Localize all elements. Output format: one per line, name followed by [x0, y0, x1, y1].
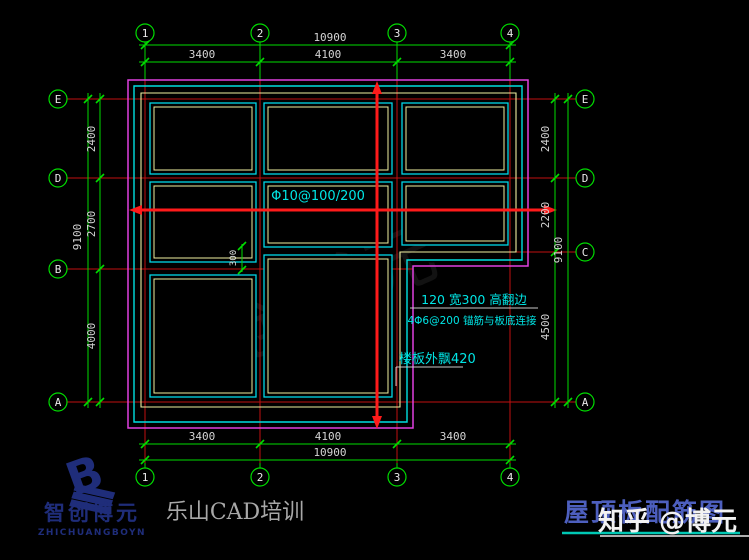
bubble-left-A: A [55, 396, 62, 409]
dim-top-seg2: 4100 [315, 48, 342, 61]
bubble-top-1: 1 [142, 27, 149, 40]
bubble-bottom-3: 3 [394, 471, 401, 484]
panel-r2c1 [150, 182, 256, 262]
panel-r3c2 [264, 255, 392, 397]
bubble-top-4: 4 [507, 27, 514, 40]
dim-right-seg2: 2200 [539, 202, 552, 229]
panel-r1c2 [264, 103, 392, 174]
dim-right-seg3: 4500 [539, 314, 552, 341]
dim-left-seg3: 4000 [85, 323, 98, 350]
logo-english-name: ZHICHUANGBOYN [38, 528, 146, 538]
dim-right-overall: 9100 [552, 237, 565, 264]
bubble-top-3: 3 [394, 27, 401, 40]
dim-bottom-overall: 10900 [313, 446, 346, 459]
dim-left-seg1: 2400 [85, 126, 98, 153]
bubble-right-C: C [582, 246, 589, 259]
dim-left-seg2: 2700 [85, 211, 98, 238]
studio-caption: 乐山CAD培训 [166, 500, 304, 525]
bubble-right-D: D [582, 172, 589, 185]
bubble-top-2: 2 [257, 27, 264, 40]
panel-r2c3 [402, 182, 508, 245]
dim-top-seg1: 3400 [189, 48, 216, 61]
bubble-left-B: B [55, 263, 62, 276]
panel-r1c3 [402, 103, 508, 174]
overhang-note: 楼板外飘420 [399, 352, 476, 367]
dim-top-overall: 10900 [313, 31, 346, 44]
dim-left-overall: 9100 [71, 224, 84, 251]
bubble-bottom-2: 2 [257, 471, 264, 484]
anchor-note: 4Φ6@200 锚筋与板底连接 [407, 314, 537, 327]
dim-right-seg1: 2400 [539, 126, 552, 153]
bubble-left-E: E [55, 93, 62, 106]
dim-offset-label: 300 [229, 250, 239, 266]
upstand-note: 120 宽300 高翻边 [421, 292, 527, 307]
bubble-right-E: E [582, 93, 589, 106]
bubble-bottom-4: 4 [507, 471, 514, 484]
bubble-left-D: D [55, 172, 62, 185]
dim-bottom-seg3: 3400 [440, 430, 467, 443]
bubble-right-A: A [582, 396, 589, 409]
logo-chinese-name: 智创博元 [44, 501, 140, 525]
cad-drawing-canvas: 智创博元 [0, 0, 749, 560]
dim-bottom-seg2: 4100 [315, 430, 342, 443]
site-watermark: 知乎 @博元 [598, 507, 737, 537]
dim-top-seg3: 3400 [440, 48, 467, 61]
rebar-spec-label: Φ10@100/200 [271, 189, 365, 204]
bubble-bottom-1: 1 [142, 471, 149, 484]
dim-bottom-seg1: 3400 [189, 430, 216, 443]
panel-r3c1 [150, 275, 256, 397]
panel-r1c1 [150, 103, 256, 174]
